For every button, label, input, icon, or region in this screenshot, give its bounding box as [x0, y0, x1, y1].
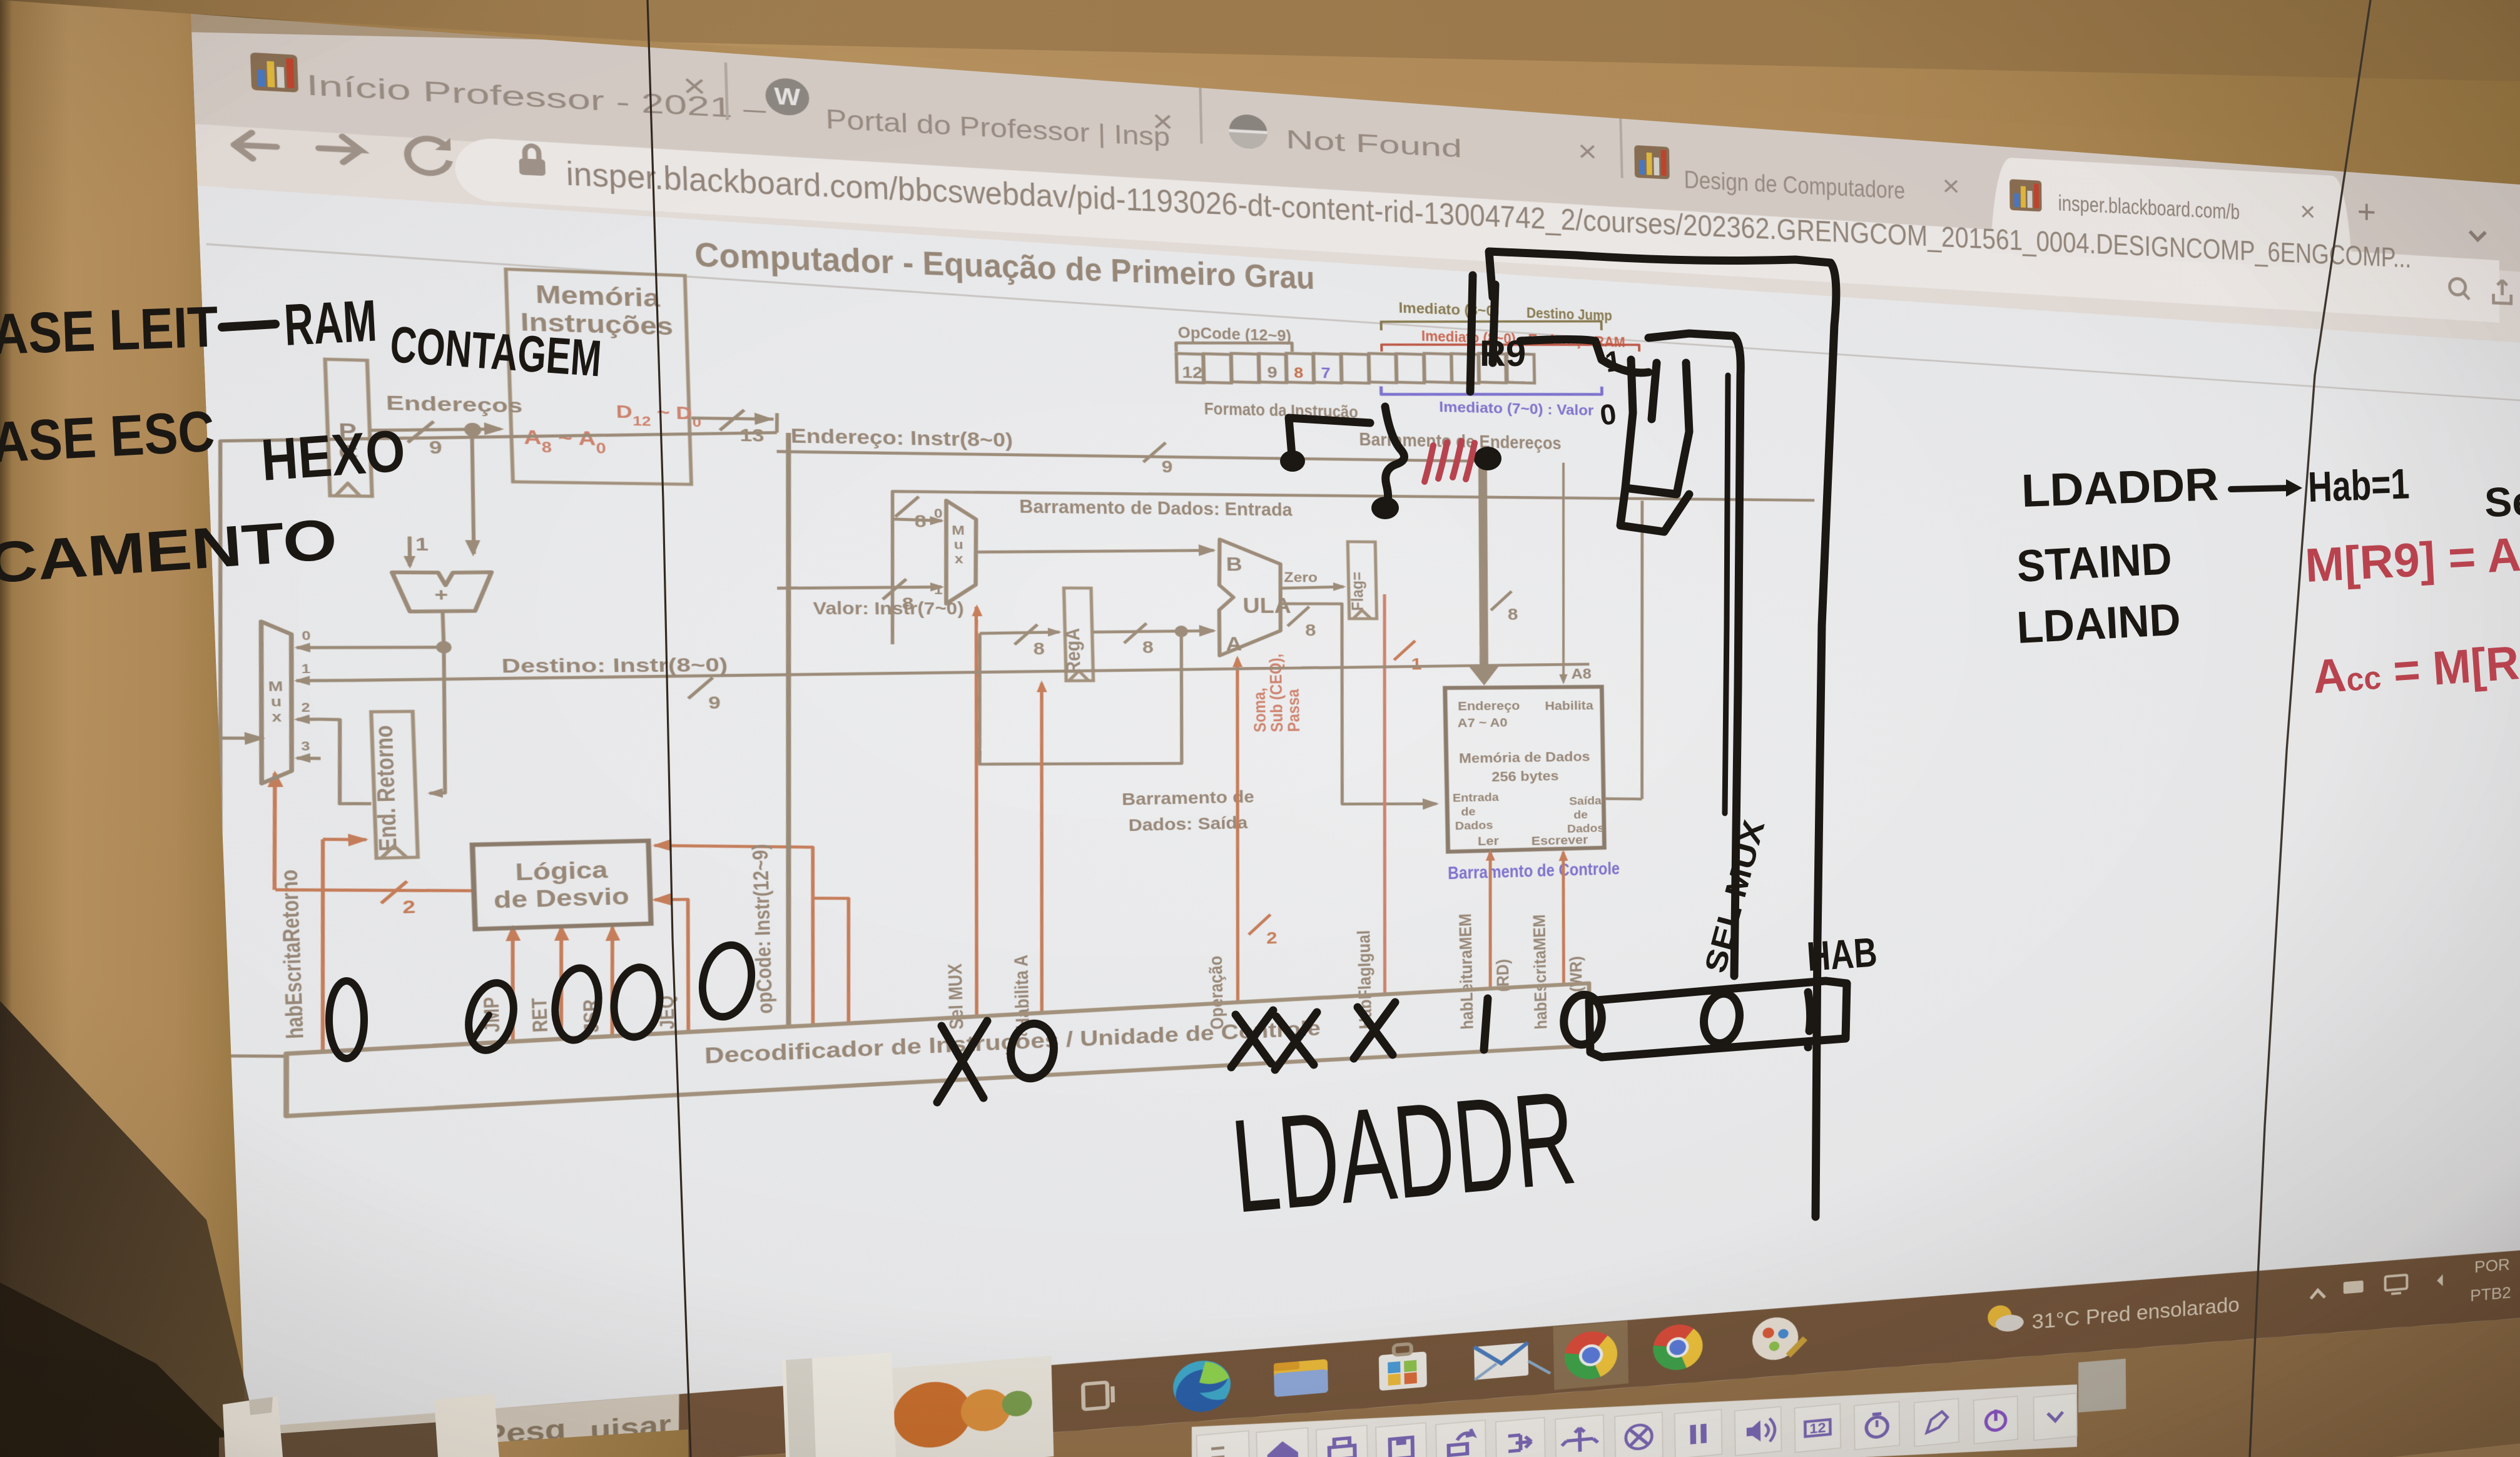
svg-text:LDAIND: LDAIND: [2016, 594, 2182, 653]
svg-text:LDADDR: LDADDR: [1226, 1063, 1581, 1241]
svg-text:HAB: HAB: [1806, 928, 1879, 980]
svg-text:Hab=1: Hab=1: [2307, 460, 2411, 511]
svg-text:STAIND: STAIND: [2016, 534, 2173, 592]
svg-text:LDADDR: LDADDR: [2021, 458, 2220, 517]
svg-text:RAM: RAM: [283, 287, 379, 358]
svg-text:HEXO: HEXO: [259, 417, 407, 493]
svg-text:Sel: Sel: [2484, 477, 2520, 525]
svg-text:BASE LEIT: BASE LEIT: [0, 295, 219, 368]
svg-text:M[R9] = A: M[R9] = A: [2304, 528, 2520, 592]
